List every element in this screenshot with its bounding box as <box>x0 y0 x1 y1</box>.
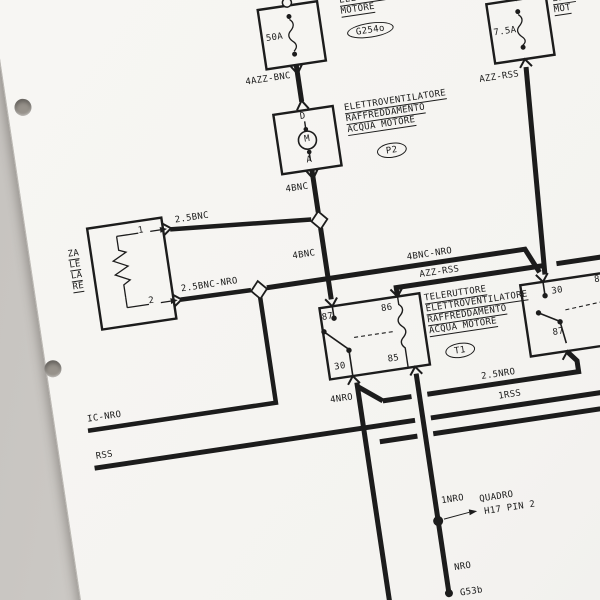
relay-main-pin-30: 30 <box>334 361 347 374</box>
component-boxes <box>59 0 600 419</box>
rotated-paper-wrap: FUSIBILE ELETTROVENTILATORE MOTORE G254o… <box>0 0 600 600</box>
motor-pin-a: A <box>306 155 313 167</box>
wire-4nro <box>357 383 400 600</box>
photo-of-wiring-diagram: FUSIBILE ELETTROVENTILATORE MOTORE G254o… <box>0 0 600 600</box>
relay-main-pin-86: 86 <box>380 302 393 315</box>
wire-ic-nro <box>72 297 276 431</box>
relay-right-pin-30: 30 <box>551 285 564 298</box>
relay-main-internals <box>318 296 411 380</box>
wire-rss-lower-bus <box>380 394 600 442</box>
motor-symbol-m: M <box>304 134 311 146</box>
relay-right-pin-87: 87 <box>552 326 565 339</box>
wire-rss-bus <box>95 378 600 468</box>
relay-main-pin-85: 85 <box>387 353 400 366</box>
relay-main-pin-87: 87 <box>321 311 334 324</box>
relay-right-pin-86: 86 <box>594 274 600 287</box>
wire-nro-to-ground <box>416 374 449 594</box>
relay-right-box <box>520 266 600 356</box>
wire-fuse-right-to-relay <box>514 67 557 274</box>
resistor-side-4: RE <box>72 281 85 294</box>
